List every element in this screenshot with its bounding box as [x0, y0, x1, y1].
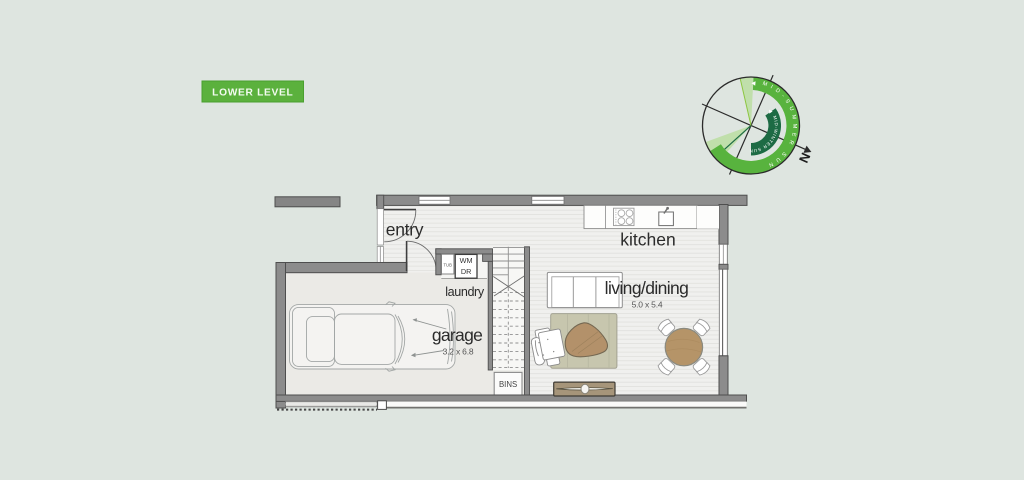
- svg-text:DR: DR: [461, 267, 472, 276]
- svg-text:kitchen: kitchen: [620, 230, 675, 250]
- svg-text:garage: garage: [432, 325, 482, 345]
- svg-text:3.2 x 6.8: 3.2 x 6.8: [443, 347, 474, 357]
- svg-text:5.0 x 5.4: 5.0 x 5.4: [632, 300, 663, 310]
- svg-text:LOWER LEVEL: LOWER LEVEL: [212, 87, 293, 98]
- svg-text:laundry: laundry: [445, 285, 485, 299]
- svg-text:WM: WM: [460, 256, 473, 265]
- svg-text:entry: entry: [386, 220, 424, 240]
- svg-text:BINS: BINS: [499, 380, 517, 389]
- svg-text:living/dining: living/dining: [605, 278, 689, 298]
- svg-text:TUB: TUB: [444, 263, 453, 268]
